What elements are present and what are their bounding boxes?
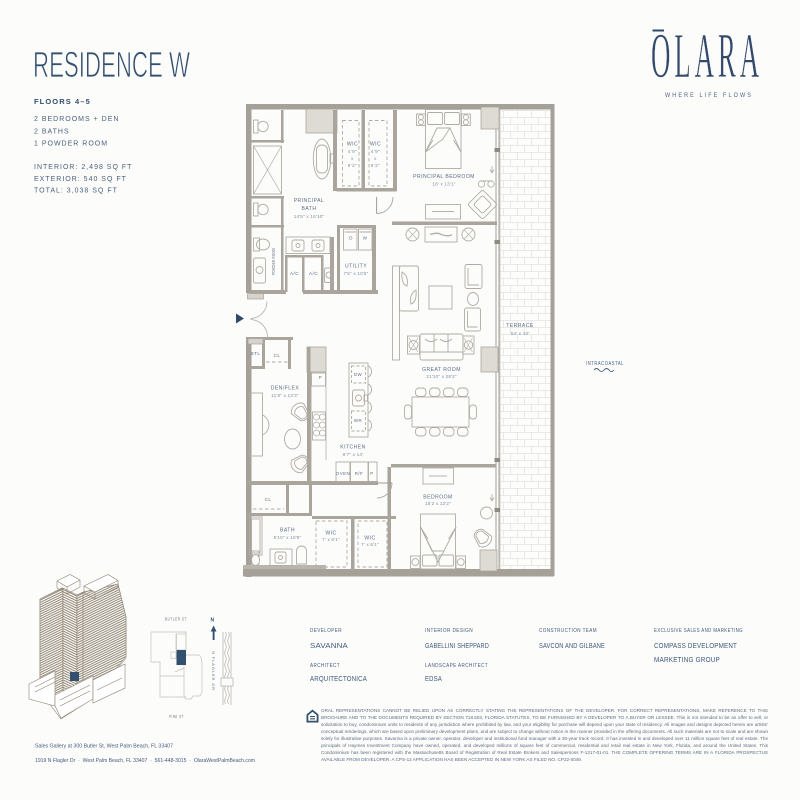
svg-text:N: N [211,618,216,624]
svg-text:7' x 6'1": 7' x 6'1" [361,542,379,547]
svg-text:GREAT ROOM: GREAT ROOM [422,367,461,373]
svg-text:18'2 x 12'2": 18'2 x 12'2" [425,501,451,506]
svg-text:2 BEDROOMS + DEN: 2 BEDROOMS + DEN [34,116,119,123]
svg-text:11'8" x 13'3": 11'8" x 13'3" [271,393,299,398]
svg-text:GABELLINI SHEPPARD: GABELLINI SHEPPARD [425,643,489,650]
svg-text:WIC: WIC [347,142,358,148]
svg-text:9'2": 9'2" [371,163,380,168]
svg-text:5'10" x 10'8": 5'10" x 10'8" [274,535,302,540]
svg-text:TERRACE: TERRACE [506,323,534,329]
svg-text:54' x 10': 54' x 10' [511,331,530,336]
svg-text:Sales Gallery at 300 Butler St: Sales Gallery at 300 Butler St, West Pal… [35,744,173,750]
svg-text:P: P [319,375,322,380]
svg-text:x: x [374,156,377,161]
svg-text:CL: CL [265,497,272,502]
svg-text:D: D [349,236,353,241]
svg-text:A/C: A/C [309,271,318,277]
svg-text:WIC: WIC [325,531,336,537]
svg-text:TOTAL: 3,038 SQ FT: TOTAL: 3,038 SQ FT [34,188,118,195]
svg-text:BTL: BTL [251,351,261,356]
svg-text:WIC: WIC [370,142,381,148]
svg-text:ARQUITECTONICA: ARQUITECTONICA [310,676,367,683]
svg-text:RESIDENCE W: RESIDENCE W [33,44,190,85]
svg-text:1 POWDER ROOM: 1 POWDER ROOM [34,141,108,148]
svg-text:N FLAGLER DR: N FLAGLER DR [211,651,216,691]
svg-text:BATH: BATH [301,206,316,212]
svg-text:COMPASS DEVELOPMENT: COMPASS DEVELOPMENT [654,643,737,650]
svg-text:SAVCON AND GILBANE: SAVCON AND GILBANE [539,643,605,650]
svg-text:LANDSCAPE ARCHITECT: LANDSCAPE ARCHITECT [425,663,488,669]
svg-text:SAVANNA: SAVANNA [310,643,348,650]
svg-text:R/F: R/F [355,471,363,476]
svg-text:WR: WR [354,418,362,423]
svg-text:9'2": 9'2" [348,163,357,168]
svg-text:BATH: BATH [280,528,295,534]
svg-text:7' x 6'1": 7' x 6'1" [322,537,340,542]
svg-text:OLARA: OLARA [651,21,763,91]
svg-text:4'9": 4'9" [371,149,380,154]
svg-text:18' x 13'1": 18' x 13'1" [432,182,455,187]
svg-text:4'9": 4'9" [348,149,357,154]
svg-text:CL: CL [274,353,281,358]
svg-text:W: W [363,236,368,241]
svg-text:2 BATHS: 2 BATHS [34,129,70,136]
svg-text:EXTERIOR: 540 SQ FT: EXTERIOR: 540 SQ FT [34,176,127,183]
svg-text:EDSA: EDSA [425,676,442,683]
svg-text:POWDER ROOM: POWDER ROOM [271,248,276,275]
svg-text:KITCHEN: KITCHEN [340,445,366,451]
svg-text:P: P [370,471,373,476]
svg-text:14'5" x 16'10": 14'5" x 16'10" [294,214,325,219]
svg-text:x: x [351,156,354,161]
svg-text:OVEN: OVEN [336,471,350,476]
svg-text:A/C: A/C [290,271,299,277]
svg-text:7'5" x 10'5": 7'5" x 10'5" [343,271,368,276]
svg-text:MARKETING GROUP: MARKETING GROUP [654,657,720,664]
svg-text:1919 N Flagler Dr · West Pal: 1919 N Flagler Dr · West Palm Beach, FL … [35,758,255,764]
svg-text:BEDROOM: BEDROOM [423,495,452,501]
svg-text:PRINCIPAL: PRINCIPAL [294,198,325,204]
svg-text:INTERIOR: 2,498 SQ FT: INTERIOR: 2,498 SQ FT [34,164,132,171]
svg-text:9'7" x 14': 9'7" x 14' [343,452,363,457]
svg-text:INTRACOASTAL: INTRACOASTAL [586,361,624,367]
svg-text:ARCHITECT: ARCHITECT [310,663,340,669]
svg-text:INTERIOR DESIGN: INTERIOR DESIGN [425,628,473,634]
svg-text:WHERE LIFE FLOWS: WHERE LIFE FLOWS [665,92,753,99]
svg-text:FLOORS 4–5: FLOORS 4–5 [34,97,91,106]
svg-text:DEVELOPER: DEVELOPER [310,628,342,634]
svg-text:WIC: WIC [364,536,375,542]
svg-text:DW: DW [354,372,363,377]
svg-text:CONSTRUCTION TEAM: CONSTRUCTION TEAM [539,628,597,634]
svg-text:PINE ST: PINE ST [169,714,184,719]
svg-text:UTILITY: UTILITY [345,264,367,270]
svg-text:EXCLUSIVE SALES AND MARKETING: EXCLUSIVE SALES AND MARKETING [654,628,743,634]
svg-text:PRINCIPAL BEDROOM: PRINCIPAL BEDROOM [413,174,475,180]
svg-text:21'10" x 28'2": 21'10" x 28'2" [426,374,457,379]
svg-text:BUTLER ST: BUTLER ST [165,617,187,622]
svg-text:DEN/FLEX: DEN/FLEX [271,386,300,392]
